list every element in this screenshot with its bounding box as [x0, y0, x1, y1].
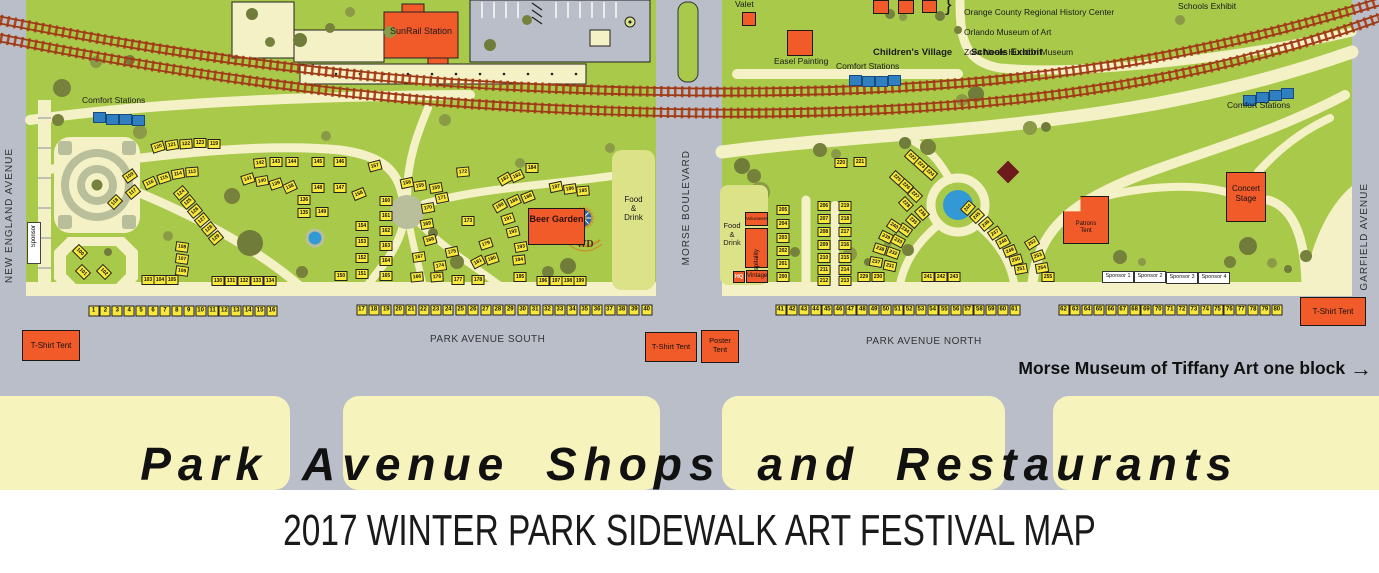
booth-134: 134: [264, 276, 277, 286]
booth-21: 21: [406, 305, 417, 316]
booth-65: 65: [1094, 305, 1105, 316]
booth-206: 206: [818, 201, 831, 211]
booth-141: 141: [240, 172, 255, 186]
booth-175: 175: [445, 246, 460, 258]
booth-113: 113: [185, 167, 199, 178]
museum-line-3: Zora Neale Hurston Museum: [964, 47, 1073, 57]
booth-168: 168: [422, 233, 437, 246]
booth-14: 14: [243, 306, 254, 317]
booth-188: 188: [520, 190, 536, 204]
booth-166: 166: [410, 271, 424, 282]
booth-67: 67: [1117, 305, 1128, 316]
museum-line-1: Orange County Regional History Center: [964, 7, 1114, 17]
comfort-station-marker: [1281, 88, 1294, 99]
booth-133: 133: [251, 276, 264, 286]
booth-56: 56: [951, 305, 962, 316]
booth-45: 45: [822, 305, 833, 316]
booth-1: 1: [88, 306, 99, 317]
booth-153: 153: [356, 237, 369, 247]
booth-46: 46: [834, 305, 845, 316]
booth-116: 116: [142, 176, 158, 191]
booth-163: 163: [380, 241, 393, 251]
booth-155: 155: [413, 180, 427, 192]
booth-176: 176: [430, 272, 444, 283]
comfort-station-marker: [119, 114, 132, 125]
booth-209: 209: [818, 240, 831, 250]
booth-101: 101: [75, 264, 91, 280]
booth-213: 213: [839, 276, 852, 286]
booth-196: 196: [537, 276, 550, 286]
booth-12: 12: [219, 306, 230, 317]
booth-185: 185: [576, 185, 590, 196]
booth-132: 132: [238, 276, 251, 286]
sponsor-box-3: Sponsor 3: [1166, 272, 1198, 284]
booth-191: 191: [500, 212, 515, 226]
booth-122: 122: [179, 139, 193, 150]
street-label-morse: MORSE BOULEVARD: [681, 150, 692, 265]
booth-204: 204: [777, 219, 790, 229]
booth-199: 199: [574, 276, 587, 286]
museum-line-2: Orlando Museum of Art: [964, 27, 1051, 37]
booth-121: 121: [165, 139, 180, 151]
booth-60: 60: [997, 305, 1008, 316]
booth-106: 106: [175, 265, 189, 277]
booth-74: 74: [1200, 305, 1211, 316]
sunrail-station-label: SunRail Station: [382, 26, 460, 36]
booth-252: 252: [1024, 235, 1040, 250]
booth-55: 55: [939, 305, 950, 316]
booth-230: 230: [872, 272, 885, 282]
booth-79: 79: [1259, 305, 1270, 316]
booth-16: 16: [267, 306, 278, 317]
booth-50: 50: [880, 305, 891, 316]
booth-7: 7: [159, 306, 170, 317]
booth-161: 161: [380, 211, 393, 221]
street-label-new-england: NEW ENGLAND AVENUE: [4, 148, 15, 283]
booth-114: 114: [171, 168, 186, 180]
booth-172: 172: [456, 166, 470, 177]
comfort-station-marker: [875, 76, 888, 87]
booth-100: 100: [72, 244, 88, 260]
booth-11: 11: [207, 306, 218, 317]
booth-205: 205: [777, 205, 790, 215]
village-square-1: [873, 0, 889, 14]
booth-64: 64: [1082, 305, 1093, 316]
childrens-village-label: Children's Village: [873, 48, 952, 59]
booth-68: 68: [1129, 305, 1140, 316]
booth-62: 62: [1058, 305, 1069, 316]
booth-151: 151: [356, 269, 369, 279]
booth-80: 80: [1271, 305, 1282, 316]
booth-73: 73: [1188, 305, 1199, 316]
booth-156: 156: [400, 177, 415, 189]
booth-212: 212: [818, 276, 831, 286]
valet-square: [742, 12, 756, 26]
booth-2: 2: [100, 306, 111, 317]
concert-stage: Concert Stage: [1226, 172, 1266, 222]
comfort-station-marker: [888, 75, 901, 86]
booth-30: 30: [517, 305, 528, 316]
booth-138: 138: [282, 180, 298, 195]
booth-75: 75: [1212, 305, 1223, 316]
booth-109: 109: [122, 168, 138, 184]
booth-63: 63: [1070, 305, 1081, 316]
booth-120: 120: [150, 140, 165, 154]
booth-54: 54: [927, 305, 938, 316]
schools-exhibit-label-top: Schools Exhibit: [1178, 2, 1236, 12]
booth-192: 192: [505, 226, 520, 239]
patrons-tent-label: Patrons Tent: [1064, 221, 1108, 235]
sponsor-vertical-box: Sponsor: [27, 222, 41, 264]
booth-61: 61: [1009, 305, 1020, 316]
street-label-park-north: PARK AVENUE NORTH: [866, 336, 982, 347]
festival-map: { "banner": "Park Avenue Shops and Resta…: [0, 0, 1379, 573]
booth-135: 135: [298, 208, 311, 218]
booth-171: 171: [435, 192, 450, 204]
sponsor-box-2: Sponsor 2: [1134, 271, 1166, 283]
sponsor-vertical-label: Sponsor: [31, 225, 37, 247]
booth-144: 144: [286, 157, 299, 167]
booth-57: 57: [962, 305, 973, 316]
village-square-3: [922, 0, 937, 13]
booth-108: 108: [175, 241, 189, 253]
booth-44: 44: [810, 305, 821, 316]
sponsor-box-1: Sponsor 1: [1102, 271, 1134, 283]
comfort-station-marker: [849, 75, 862, 86]
booth-143: 143: [270, 157, 283, 167]
comfort-station-marker: [132, 115, 145, 126]
booth-34: 34: [567, 305, 578, 316]
shops-banner: Park Avenue Shops and Restaurants: [0, 437, 1379, 491]
booth-229: 229: [858, 272, 871, 282]
booth-78: 78: [1248, 305, 1259, 316]
vintage-box: Vintage: [746, 270, 768, 283]
booth-43: 43: [798, 305, 809, 316]
booth-170: 170: [421, 202, 436, 214]
booth-51: 51: [892, 305, 903, 316]
beer-garden-box: Beer Garden: [528, 208, 585, 245]
booth-27: 27: [480, 305, 491, 316]
booth-195: 195: [514, 272, 527, 282]
museums-brace: }: [945, 0, 952, 17]
booth-47: 47: [845, 305, 856, 316]
food-drink-label-left: Food & Drink: [612, 195, 655, 223]
hq-box: HQ: [733, 271, 745, 283]
booth-208: 208: [818, 227, 831, 237]
booth-147: 147: [334, 183, 347, 193]
booth-10: 10: [195, 306, 206, 317]
booth-177: 177: [452, 275, 465, 285]
comfort-stations-label-east: Comfort Stations: [1227, 101, 1290, 111]
booth-24: 24: [443, 305, 454, 316]
booth-202: 202: [777, 246, 790, 256]
booth-38: 38: [616, 305, 627, 316]
booth-6: 6: [148, 306, 159, 317]
easel-painting-square: [787, 30, 813, 56]
booth-214: 214: [839, 265, 852, 275]
booth-130: 130: [212, 276, 225, 286]
booth-8: 8: [171, 306, 182, 317]
booth-221: 221: [854, 157, 867, 167]
booth-66: 66: [1105, 305, 1116, 316]
booth-13: 13: [231, 306, 242, 317]
booth-178: 178: [472, 275, 485, 285]
booth-17: 17: [356, 305, 367, 316]
map-title: 2017 WINTER PARK SIDEWALK ART FESTIVAL M…: [165, 506, 1213, 556]
food-drink-label-right: Food & Drink: [717, 222, 747, 248]
booth-203: 203: [777, 233, 790, 243]
booth-154: 154: [356, 221, 369, 231]
booth-164: 164: [380, 256, 393, 266]
booth-29: 29: [505, 305, 516, 316]
booth-4: 4: [124, 306, 135, 317]
booth-200: 200: [777, 272, 790, 282]
booth-118: 118: [107, 194, 123, 210]
booth-255: 255: [1042, 272, 1055, 282]
booth-210: 210: [818, 253, 831, 263]
booth-41: 41: [775, 305, 786, 316]
booth-242: 242: [935, 272, 948, 282]
booth-169: 169: [420, 218, 435, 230]
booth-231: 231: [883, 260, 898, 272]
booth-20: 20: [393, 305, 404, 316]
booth-215: 215: [839, 253, 852, 263]
comfort-station-marker: [862, 76, 875, 87]
booth-251: 251: [1014, 263, 1029, 275]
village-square-2: [898, 0, 914, 14]
booth-71: 71: [1165, 305, 1176, 316]
booth-117: 117: [125, 184, 141, 200]
booth-123: 123: [194, 138, 207, 148]
booth-15: 15: [255, 306, 266, 317]
booth-140: 140: [255, 175, 270, 187]
booth-152: 152: [356, 253, 369, 263]
booth-115: 115: [156, 171, 171, 185]
booth-179: 179: [478, 237, 493, 251]
booth-201: 201: [777, 259, 790, 269]
booth-19: 19: [381, 305, 392, 316]
booth-42: 42: [787, 305, 798, 316]
booth-52: 52: [904, 305, 915, 316]
booth-158: 158: [351, 187, 367, 201]
booth-216: 216: [839, 240, 852, 250]
booth-76: 76: [1224, 305, 1235, 316]
booth-237: 237: [869, 256, 884, 268]
comfort-station-marker: [106, 114, 119, 125]
booth-33: 33: [554, 305, 565, 316]
booth-59: 59: [986, 305, 997, 316]
booth-187: 187: [549, 181, 564, 193]
booth-102: 102: [96, 264, 112, 280]
booth-194: 194: [512, 254, 526, 265]
booth-167: 167: [412, 251, 426, 263]
booth-218: 218: [839, 214, 852, 224]
booth-219: 219: [839, 201, 852, 211]
booth-107: 107: [175, 253, 189, 265]
booth-180: 180: [484, 252, 499, 266]
comfort-station-marker: [93, 112, 106, 123]
booth-149: 149: [316, 207, 329, 217]
booth-146: 146: [334, 157, 347, 167]
booth-165: 165: [380, 271, 393, 281]
booth-174: 174: [433, 260, 447, 272]
booth-36: 36: [592, 305, 603, 316]
booth-49: 49: [869, 305, 880, 316]
booth-72: 72: [1177, 305, 1188, 316]
hospitality-box: Hospitality: [745, 228, 768, 268]
booth-77: 77: [1236, 305, 1247, 316]
easel-painting-label: Easel Painting: [774, 57, 828, 67]
booth-232: 232: [885, 246, 901, 260]
volunteers-box: Volunteers: [745, 212, 768, 226]
booth-35: 35: [579, 305, 590, 316]
booth-28: 28: [492, 305, 503, 316]
booth-150: 150: [335, 271, 348, 281]
booth-162: 162: [380, 226, 393, 236]
booth-53: 53: [915, 305, 926, 316]
booth-183: 183: [509, 169, 525, 184]
booth-5: 5: [136, 306, 147, 317]
booth-145: 145: [312, 157, 325, 167]
booth-136: 136: [298, 195, 311, 205]
booth-207: 207: [818, 214, 831, 224]
street-label-park-south: PARK AVENUE SOUTH: [430, 334, 545, 345]
booth-217: 217: [839, 227, 852, 237]
booth-142: 142: [253, 157, 267, 168]
booth-186: 186: [563, 183, 577, 195]
booth-173: 173: [462, 216, 475, 226]
booth-119: 119: [208, 139, 221, 149]
booth-39: 39: [629, 305, 640, 316]
booth-3: 3: [112, 306, 123, 317]
valet-label: Valet: [735, 0, 754, 10]
comfort-stations-label-mid: Comfort Stations: [836, 62, 899, 72]
booth-9: 9: [183, 306, 194, 317]
booth-22: 22: [418, 305, 429, 316]
booth-31: 31: [530, 305, 541, 316]
booth-131: 131: [225, 276, 238, 286]
booth-220: 220: [835, 158, 848, 168]
morse-museum-note: Morse Museum of Tiffany Art one block →: [1000, 356, 1372, 382]
booth-105: 105: [166, 275, 179, 285]
booth-160: 160: [380, 196, 393, 206]
booth-58: 58: [974, 305, 985, 316]
booth-253: 253: [1030, 249, 1046, 263]
booth-32: 32: [542, 305, 553, 316]
comfort-stations-label-west: Comfort Stations: [82, 96, 145, 106]
booth-139: 139: [268, 177, 283, 191]
booth-70: 70: [1153, 305, 1164, 316]
booth-23: 23: [430, 305, 441, 316]
booth-148: 148: [312, 183, 325, 193]
tshirt-tent-east: T-Shirt Tent: [1300, 297, 1366, 326]
street-label-garfield: GARFIELD AVENUE: [1359, 183, 1370, 291]
morse-museum-note-text: Morse Museum of Tiffany Art one block: [1018, 358, 1345, 378]
booth-184: 184: [526, 163, 539, 173]
tshirt-tent-west: T-Shirt Tent: [22, 330, 80, 361]
booth-40: 40: [641, 305, 652, 316]
booth-243: 243: [948, 272, 961, 282]
booth-157: 157: [367, 159, 382, 172]
booth-211: 211: [818, 265, 831, 275]
booth-69: 69: [1141, 305, 1152, 316]
booth-26: 26: [468, 305, 479, 316]
tshirt-tent-mid: T-Shirt Tent: [645, 332, 697, 362]
booth-48: 48: [857, 305, 868, 316]
booth-193: 193: [514, 241, 529, 253]
poster-tent: Poster Tent: [701, 330, 739, 363]
right-arrow-icon: →: [1350, 356, 1372, 381]
sponsor-box-4: Sponsor 4: [1198, 272, 1230, 284]
booth-37: 37: [604, 305, 615, 316]
booth-25: 25: [455, 305, 466, 316]
museums-list: Orange County Regional History Center Or…: [964, 0, 1114, 57]
booth-241: 241: [922, 272, 935, 282]
booth-18: 18: [368, 305, 379, 316]
